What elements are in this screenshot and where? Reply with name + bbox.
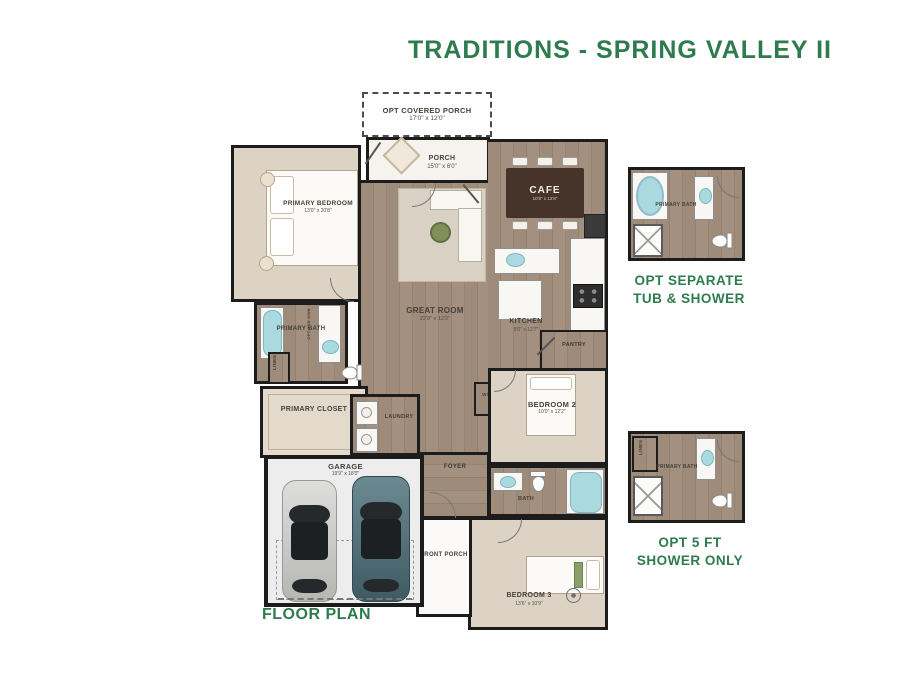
room-pantry [540,330,608,371]
car-roof [361,519,400,559]
room-dims: 17'0" x 12'0" [409,115,445,123]
option-2-caption: OPT 5 FT SHOWER ONLY [615,534,765,570]
sink-icon [699,188,712,204]
pillow-icon [530,377,572,390]
shower-icon [633,224,663,257]
pillow-icon [270,218,294,256]
tub-icon [636,176,664,216]
room-front-porch [416,517,472,617]
plant-icon [430,222,451,243]
sink-icon [500,476,516,488]
sink-icon [506,253,525,267]
toilet-icon [342,365,363,381]
kitchen-counter [494,248,560,274]
sink-icon [322,340,339,354]
chair-icon [562,221,578,230]
caption-line: OPT SEPARATE [615,272,763,290]
closet-outline [268,394,360,450]
cafe-table-icon: CAFE 10'8" x 12'8" [506,168,584,218]
room-linen [268,352,290,384]
kitchen-island [498,280,542,320]
room-porch [366,137,490,183]
chair-icon [537,157,553,166]
page-title: TRADITIONS - SPRING VALLEY II [400,36,840,65]
toilet-icon [712,233,733,249]
car-roof [291,522,328,560]
toilet-icon [712,493,733,509]
toilet-icon [530,471,546,492]
car-rear-window [292,579,327,592]
window-marker-icon [260,172,275,187]
dryer-door-icon [361,434,372,445]
room-dims: 10'8" x 12'8" [533,196,558,201]
pillow-icon [574,562,583,588]
chair-icon [537,221,553,230]
chair-icon [562,157,578,166]
floor-plan-label: FLOOR PLAN [262,606,371,624]
ceiling-fan-icon [566,588,581,603]
car-icon [282,480,337,602]
sofa-icon [458,208,482,262]
garage-door-line [278,598,412,600]
vanity-sink [318,305,341,363]
floor-plan-page: TRADITIONS - SPRING VALLEY II OPT COVERE… [0,0,900,675]
tub-water [263,310,282,357]
car-rear-window [363,579,400,593]
room-label: OPT COVERED PORCH [383,106,472,115]
window-marker-icon [259,256,274,271]
caption-line: TUB & SHOWER [615,290,763,308]
room-opt-covered-porch: OPT COVERED PORCH 17'0" x 12'0" [362,92,492,137]
chair-icon [512,157,528,166]
pillow-icon [586,560,600,590]
fridge-icon [584,214,606,238]
stove-icon [573,284,603,308]
option-1-caption: OPT SEPARATE TUB & SHOWER [615,272,763,308]
caption-line: OPT 5 FT [615,534,765,552]
room-label: CAFE [529,185,560,196]
room-linen [632,436,658,472]
chair-icon [512,221,528,230]
washer-door-icon [361,407,372,418]
car-icon [352,476,410,602]
caption-line: SHOWER ONLY [615,552,765,570]
shower-icon [633,476,663,516]
tub-water [570,472,602,513]
sink-icon [701,450,714,466]
